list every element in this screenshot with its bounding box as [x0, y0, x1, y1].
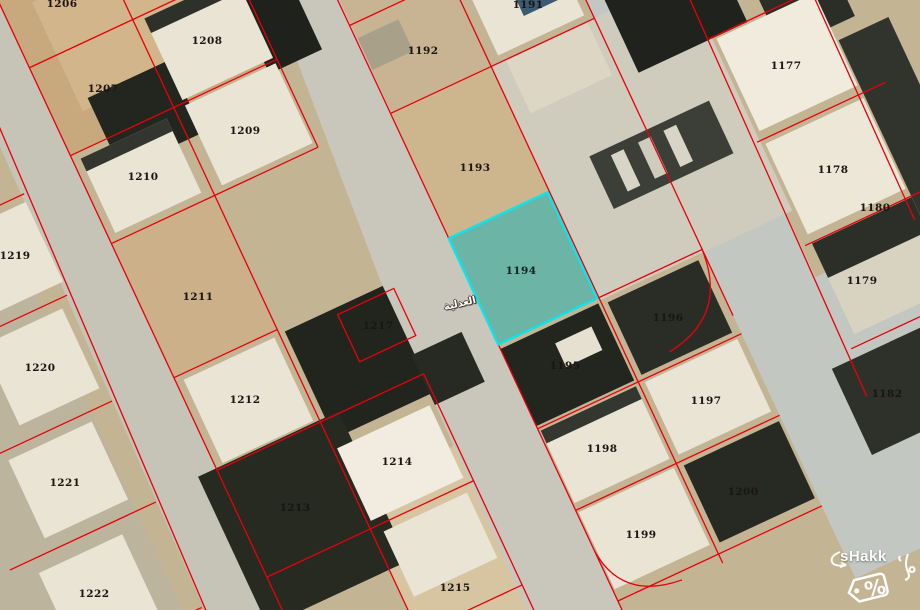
- parcel-label[interactable]: 1197: [691, 395, 722, 407]
- parcel-label[interactable]: 1191: [513, 0, 544, 11]
- parcel-label[interactable]: 1192: [408, 45, 439, 57]
- parcel-label[interactable]: 1199: [626, 529, 657, 541]
- parcel-label[interactable]: 1211: [183, 291, 214, 303]
- parcel-label[interactable]: 1198: [587, 443, 618, 455]
- parcel-label[interactable]: 1214: [382, 456, 413, 468]
- parcel-label[interactable]: 1200: [728, 486, 759, 498]
- satellite-map-canvas[interactable]: 1206120712081209121012191211122012121221…: [0, 0, 920, 610]
- parcel-label[interactable]: 1210: [128, 171, 159, 183]
- watermark-brand-text: sHakk: [840, 548, 887, 565]
- parcel-label[interactable]: 1177: [771, 60, 802, 72]
- parcel-label[interactable]: 1209: [230, 125, 261, 137]
- parcel-label[interactable]: 1196: [653, 312, 684, 324]
- parcel-label[interactable]: 1179: [847, 275, 878, 287]
- parcel-label[interactable]: 1213: [280, 502, 311, 514]
- price-tag-icon: %: [846, 573, 889, 606]
- parcel-label[interactable]: 1208: [192, 35, 223, 47]
- parcel-label[interactable]: 1206: [47, 0, 78, 10]
- parcel-label[interactable]: 1221: [50, 477, 81, 489]
- parcel-label[interactable]: 1217: [363, 320, 394, 332]
- parcel-label[interactable]: 1222: [79, 588, 110, 600]
- parcel-label[interactable]: 1182: [872, 388, 903, 400]
- parcel-label-highlighted[interactable]: 1194: [506, 265, 537, 277]
- parcel-label[interactable]: 1219: [0, 250, 30, 262]
- parcel-label[interactable]: 1193: [460, 162, 491, 174]
- arabic-calligraphy-mark: [899, 554, 914, 580]
- parcel-label[interactable]: 1220: [25, 362, 56, 374]
- watermark-logo: sHakk %: [826, 546, 918, 608]
- parcel-label[interactable]: 1207: [88, 83, 119, 95]
- parcel-label[interactable]: 1212: [230, 394, 261, 406]
- parcel-label[interactable]: 1215: [440, 582, 471, 594]
- parcel-label[interactable]: 1180: [860, 202, 891, 214]
- parcel-label[interactable]: 1195: [550, 360, 581, 372]
- parcel-label[interactable]: 1178: [818, 164, 849, 176]
